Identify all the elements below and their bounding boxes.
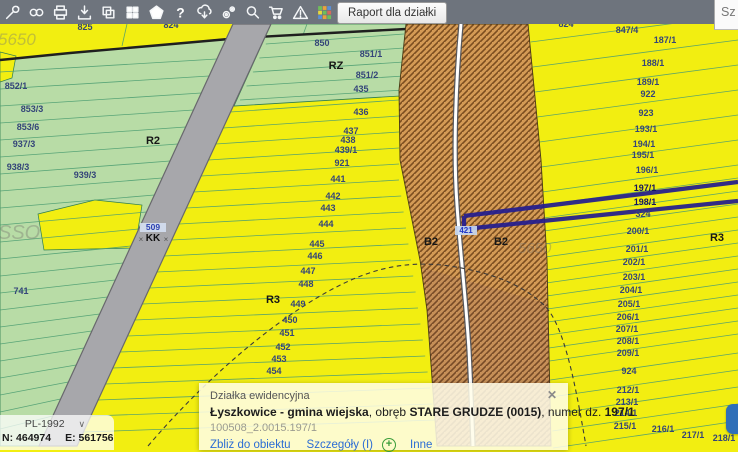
report-for-parcel-button[interactable]: Raport dla działki — [337, 2, 447, 24]
landuse-label: B2 — [494, 236, 508, 248]
landuse-label: RZ — [329, 60, 344, 72]
parcel-label: 188/1 — [642, 58, 665, 68]
parcel-label: 851/1 — [360, 49, 383, 59]
parcel-label: 938/3 — [7, 162, 30, 172]
parcel-label: 924 — [621, 366, 636, 376]
north-coordinate: N: 464974 — [2, 432, 51, 444]
warning-icon[interactable] — [292, 4, 309, 21]
tiles-icon[interactable] — [124, 4, 141, 21]
parcel-label: 922 — [640, 89, 655, 99]
parcel-label: 189/1 — [637, 77, 660, 87]
coordinate-values: N: 464974 E: 561756 — [2, 432, 108, 444]
link-icon[interactable] — [28, 4, 45, 21]
crs-selector[interactable]: PL-1992 ∨ — [2, 418, 108, 430]
parcel-label: 215/1 — [614, 421, 637, 431]
parcel-desc-part: , obręb — [369, 405, 410, 419]
parcel-label: 207/1 — [616, 324, 639, 334]
parcel-label: 324 — [635, 209, 650, 219]
parcel-label: 202/1 — [623, 257, 646, 267]
parcel-label: 446 — [307, 251, 322, 261]
map-watermark: SSO — [0, 222, 40, 244]
parcel-label: 201/1 — [626, 244, 649, 254]
parcel-label: 194/1 — [633, 139, 656, 149]
parcel-label: 450 — [282, 315, 297, 325]
cloud-download-icon[interactable] — [196, 4, 213, 21]
landuse-label: R3 — [710, 232, 724, 244]
download-icon[interactable] — [76, 4, 93, 21]
parcel-id: 100508_2.0015.197/1 — [210, 422, 557, 434]
parcel-label: 195/1 — [632, 150, 655, 160]
parcel-label: 447 — [300, 266, 315, 276]
parcel-label: 200/1 — [627, 226, 650, 236]
parcel-label: 448 — [298, 279, 313, 289]
help-icon[interactable]: ? — [172, 4, 189, 21]
parcel-label: 509 — [146, 222, 160, 232]
parcel-label: 921 — [334, 158, 349, 168]
parcel-label: 851/2 — [356, 70, 379, 80]
map-watermark: 5650 — [0, 30, 36, 49]
parcel-desc-part: , numer dz. — [541, 405, 604, 419]
parcel-label: 193/1 — [635, 124, 658, 134]
parcel-label: 847/4 — [616, 25, 639, 35]
parcel-label: 438 — [340, 135, 355, 145]
parcel-label: 212/1 — [617, 385, 640, 395]
side-panel-label: Sz — [721, 5, 736, 19]
parcel-label: 198/1 — [634, 197, 657, 207]
parcel-label: 852/1 — [5, 81, 28, 91]
cart-icon[interactable] — [268, 4, 285, 21]
parcel-label: 453 — [271, 354, 286, 364]
details-link[interactable]: Szczegóły (I) — [307, 439, 373, 451]
coordinates-panel: PL-1992 ∨ N: 464974 E: 561756 — [0, 415, 114, 450]
chevron-down-icon: ∨ — [79, 419, 86, 430]
tools-icon[interactable] — [4, 4, 21, 21]
landuse-label: R3 — [266, 294, 280, 306]
parcel-desc-part: 197/1 — [605, 405, 635, 419]
parcel-info-popup: Działka ewidencyjna ✕ Łyszkowice - gmina… — [199, 383, 568, 450]
parcel-label: 451 — [279, 328, 294, 338]
parcel-desc-part: Łyszkowice - gmina wiejska — [210, 405, 369, 419]
parcel-label: × — [139, 235, 144, 244]
parcel-label: 454 — [266, 366, 281, 376]
settings-icon[interactable] — [220, 4, 237, 21]
parcel-label: 853/6 — [17, 122, 40, 132]
parcel-label: 741 — [13, 286, 28, 296]
parcel-label: 939/3 — [74, 170, 97, 180]
parcel-label: 217/1 — [682, 430, 705, 440]
map-watermark: 5650 — [518, 240, 552, 257]
parcel-label: 196/1 — [636, 165, 659, 175]
parcel-label: KK — [146, 233, 161, 244]
landuse-label: R2 — [146, 135, 160, 147]
toolbar: ? Raport dla działki — [0, 0, 738, 24]
parcel-label: 436 — [353, 107, 368, 117]
popup-title: Działka ewidencyjna — [210, 390, 310, 402]
east-coordinate: E: 561756 — [65, 432, 113, 444]
parcel-label: 218/1 — [713, 433, 736, 443]
palette-icon[interactable] — [316, 4, 333, 21]
parcel-label: 206/1 — [617, 312, 640, 322]
parcel-desc-part: STARE GRUDZE (0015) — [409, 405, 541, 419]
parcel-label: 205/1 — [618, 299, 641, 309]
parcel-label: 421 — [459, 226, 473, 235]
search-icon[interactable] — [244, 4, 261, 21]
parcel-label: 216/1 — [652, 424, 675, 434]
landuse-label: B2 — [424, 236, 438, 248]
svg-text:?: ? — [176, 4, 184, 20]
crs-label: PL-1992 — [25, 418, 65, 430]
polygon-icon[interactable] — [148, 4, 165, 21]
parcel-label: 439/1 — [335, 145, 358, 155]
parcel-label: 923 — [638, 108, 653, 118]
parcel-label: 204/1 — [620, 285, 643, 295]
zoom-to-object-link[interactable]: Zbliż do obiektu — [210, 439, 291, 451]
popup-header: Działka ewidencyjna ✕ — [210, 390, 557, 402]
parcel-label: 444 — [318, 219, 333, 229]
copy-icon[interactable] — [100, 4, 117, 21]
parcel-label: 937/3 — [13, 139, 36, 149]
parcel-label: 443 — [320, 203, 335, 213]
parcel-label: 449 — [290, 299, 305, 309]
parcel-label: 452 — [275, 342, 290, 352]
parcel-description: Łyszkowice - gmina wiejska, obręb STARE … — [210, 405, 557, 419]
parcel-label: 850 — [314, 38, 329, 48]
parcel-label: × — [164, 235, 169, 244]
parcel-label: 208/1 — [617, 336, 640, 346]
other-link[interactable]: Inne — [410, 439, 432, 451]
toolbar-icons: ? — [0, 4, 333, 21]
parcel-label: 442 — [325, 191, 340, 201]
parcel-label: 441 — [330, 174, 345, 184]
parcel-label: 197/1 — [634, 183, 657, 193]
parcel-label: 853/3 — [21, 104, 44, 114]
parcel-label: 187/1 — [654, 35, 677, 45]
print-icon[interactable] — [52, 4, 69, 21]
parcel-label: 203/1 — [623, 272, 646, 282]
parcel-label: 435 — [353, 84, 368, 94]
side-panel-header[interactable]: Sz — [714, 0, 738, 30]
parcel-label: 445 — [309, 239, 324, 249]
parcel-label: 209/1 — [617, 348, 640, 358]
panel-handle-button[interactable] — [726, 404, 738, 434]
close-icon[interactable]: ✕ — [547, 390, 557, 400]
